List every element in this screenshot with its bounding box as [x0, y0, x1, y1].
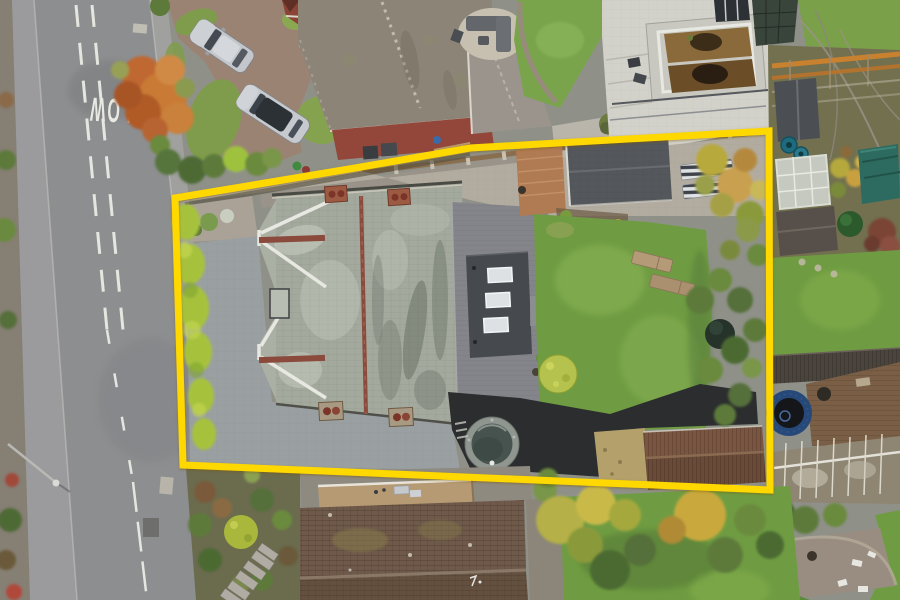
grey-shed: [774, 78, 820, 142]
aerial-photo: SLOW: [0, 0, 900, 600]
utility-cover: [159, 477, 173, 495]
chimney: [389, 407, 414, 426]
round-topiary-bush: [224, 515, 258, 549]
skylight-grid: [714, 0, 750, 22]
plot-interior: [172, 134, 770, 490]
wooden-shed: [776, 206, 838, 256]
hot-tub: [465, 417, 519, 471]
skylight: [484, 317, 509, 332]
dormer-window: [270, 289, 289, 318]
road-patch-dark: [143, 518, 159, 537]
skylight: [488, 267, 513, 282]
brown-shed: [643, 426, 766, 490]
teal-tarp-structure: [858, 144, 900, 204]
round-garden-bush: [539, 355, 577, 393]
garage-roof: [566, 136, 672, 206]
small-greenhouse: [776, 155, 830, 209]
terracotta-steps: [516, 146, 566, 216]
chimney: [324, 185, 347, 202]
fruit-cage: [752, 0, 798, 46]
utility-cover: [133, 23, 148, 33]
roof-vent: [410, 490, 421, 498]
blue-bin: [433, 136, 441, 144]
skylight: [486, 292, 511, 307]
grill: [363, 145, 379, 159]
neighbour-tiled-roof: [300, 500, 528, 600]
white-house-roof-box: [646, 14, 766, 100]
aerial-photo-stage: SLOW: [0, 0, 900, 600]
chimney: [319, 401, 344, 420]
green-bin: [293, 162, 302, 171]
chimney: [387, 188, 410, 205]
extension-roof: [466, 252, 532, 358]
main-house-roof: [259, 182, 467, 427]
neighbour-house-roof: [298, 0, 492, 132]
roof-vent: [394, 486, 409, 495]
bare-patch: [594, 428, 650, 488]
